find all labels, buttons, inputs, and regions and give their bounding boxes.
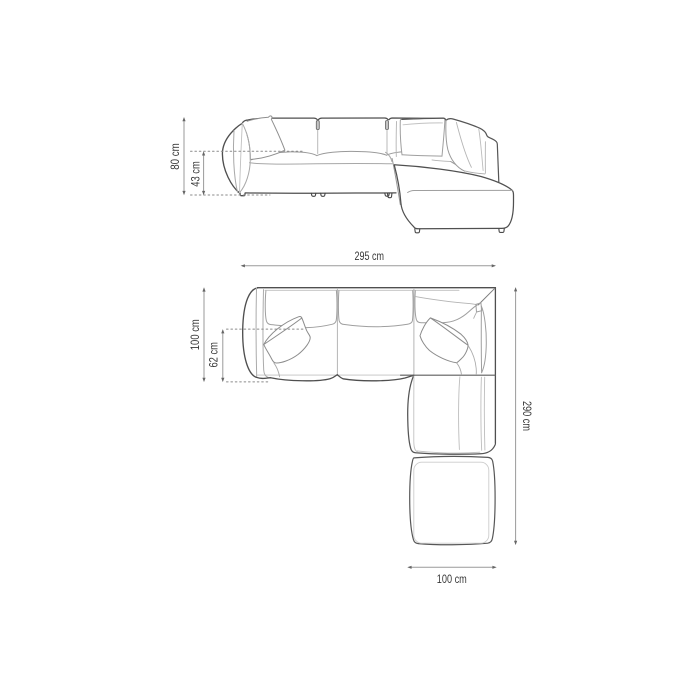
svg-text:295 cm: 295 cm: [355, 251, 385, 263]
svg-text:80 cm: 80 cm: [170, 143, 182, 170]
svg-text:290 cm: 290 cm: [520, 401, 532, 431]
svg-text:43 cm: 43 cm: [191, 161, 203, 187]
svg-text:100 cm: 100 cm: [190, 319, 202, 350]
svg-text:100 cm: 100 cm: [437, 574, 467, 586]
svg-text:62 cm: 62 cm: [208, 342, 220, 368]
